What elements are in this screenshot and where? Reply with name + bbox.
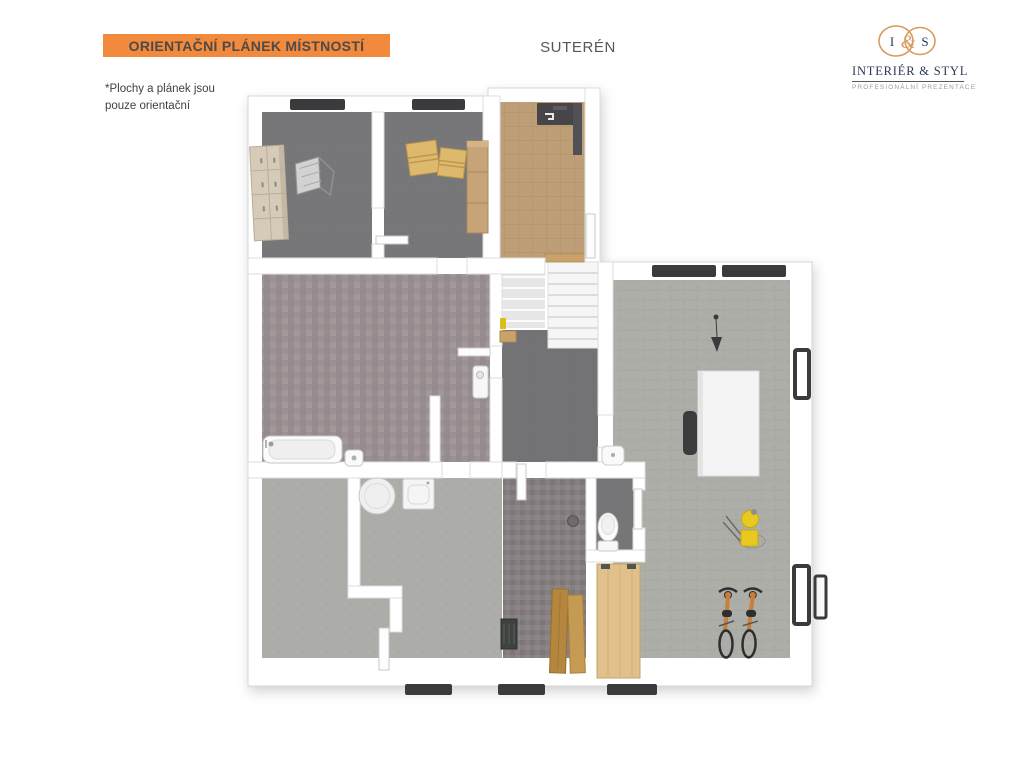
wood-plank <box>568 595 586 673</box>
basement-floorplan <box>0 0 1024 768</box>
wall-shelf <box>500 331 516 342</box>
wall <box>467 258 545 274</box>
wall <box>430 396 440 462</box>
window-well <box>815 576 826 618</box>
wall <box>502 462 516 478</box>
door-leaf <box>634 489 642 529</box>
washing-machine <box>403 479 434 509</box>
wood-panel <box>597 564 640 678</box>
wall <box>546 462 645 478</box>
wardrobe <box>250 145 289 241</box>
wall <box>586 478 596 562</box>
wall <box>633 478 645 490</box>
wall-grate <box>501 619 517 649</box>
wall <box>248 462 442 478</box>
boiler <box>359 478 395 514</box>
bathtub <box>263 436 342 463</box>
toilet <box>598 513 618 551</box>
door-leaf <box>517 464 526 500</box>
wall <box>348 586 402 598</box>
wall <box>372 112 384 208</box>
wall-switch <box>500 318 506 329</box>
wood-plank <box>550 589 569 674</box>
wall <box>490 378 502 462</box>
wall <box>586 550 645 562</box>
window <box>498 684 545 695</box>
window <box>290 99 345 110</box>
window <box>652 265 716 277</box>
window <box>405 684 452 695</box>
window <box>412 99 465 110</box>
door-leaf <box>586 214 595 258</box>
storage-box <box>437 148 466 179</box>
sideboard <box>467 141 488 233</box>
door-leaf <box>458 348 490 356</box>
wash-basin <box>602 446 624 465</box>
wall <box>348 478 360 594</box>
wall <box>248 258 437 274</box>
storage-box <box>406 140 440 176</box>
wall <box>598 262 613 415</box>
wall <box>633 528 645 550</box>
room-wc-floor <box>596 478 633 550</box>
bath-faucet <box>269 442 274 447</box>
gym-table <box>698 371 759 476</box>
wall <box>470 462 502 478</box>
bidet <box>345 450 363 466</box>
stair-lower-flight <box>502 266 545 328</box>
door-leaf <box>379 628 389 670</box>
pedestal-sink <box>473 366 488 398</box>
window <box>722 265 786 277</box>
gym-chair <box>683 411 697 455</box>
door-leaf <box>376 236 408 244</box>
window <box>607 684 657 695</box>
wall <box>390 598 402 632</box>
floor-drain <box>568 516 579 527</box>
